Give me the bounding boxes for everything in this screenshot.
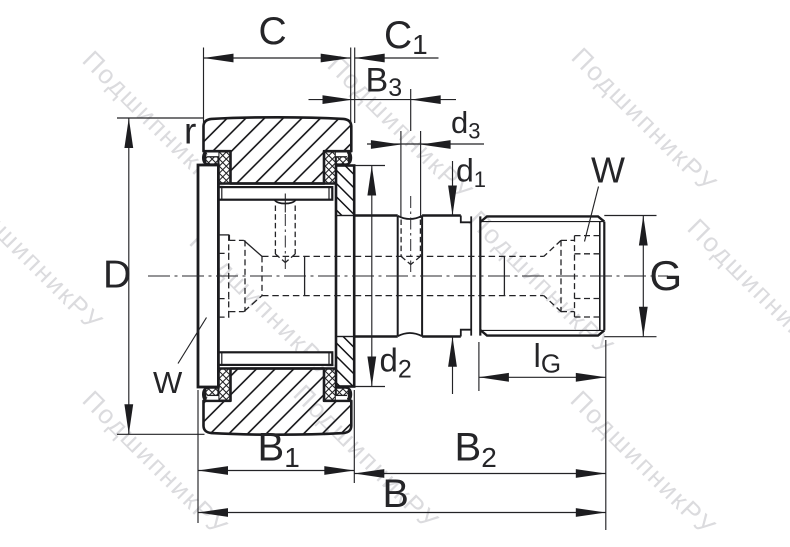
svg-text:d1: d1: [456, 153, 486, 193]
svg-text:W: W: [153, 365, 183, 400]
svg-text:B3: B3: [366, 62, 403, 103]
svg-text:C: C: [259, 10, 287, 53]
svg-text:lG: lG: [534, 337, 562, 379]
svg-text:B2: B2: [455, 426, 497, 474]
svg-text:B: B: [383, 472, 409, 516]
svg-text:W: W: [591, 150, 625, 191]
svg-text:r: r: [184, 111, 196, 152]
svg-text:d3: d3: [451, 105, 481, 144]
svg-text:d2: d2: [380, 342, 412, 384]
svg-text:C1: C1: [384, 14, 428, 60]
svg-text:D: D: [103, 254, 131, 297]
svg-text:G: G: [650, 252, 683, 299]
